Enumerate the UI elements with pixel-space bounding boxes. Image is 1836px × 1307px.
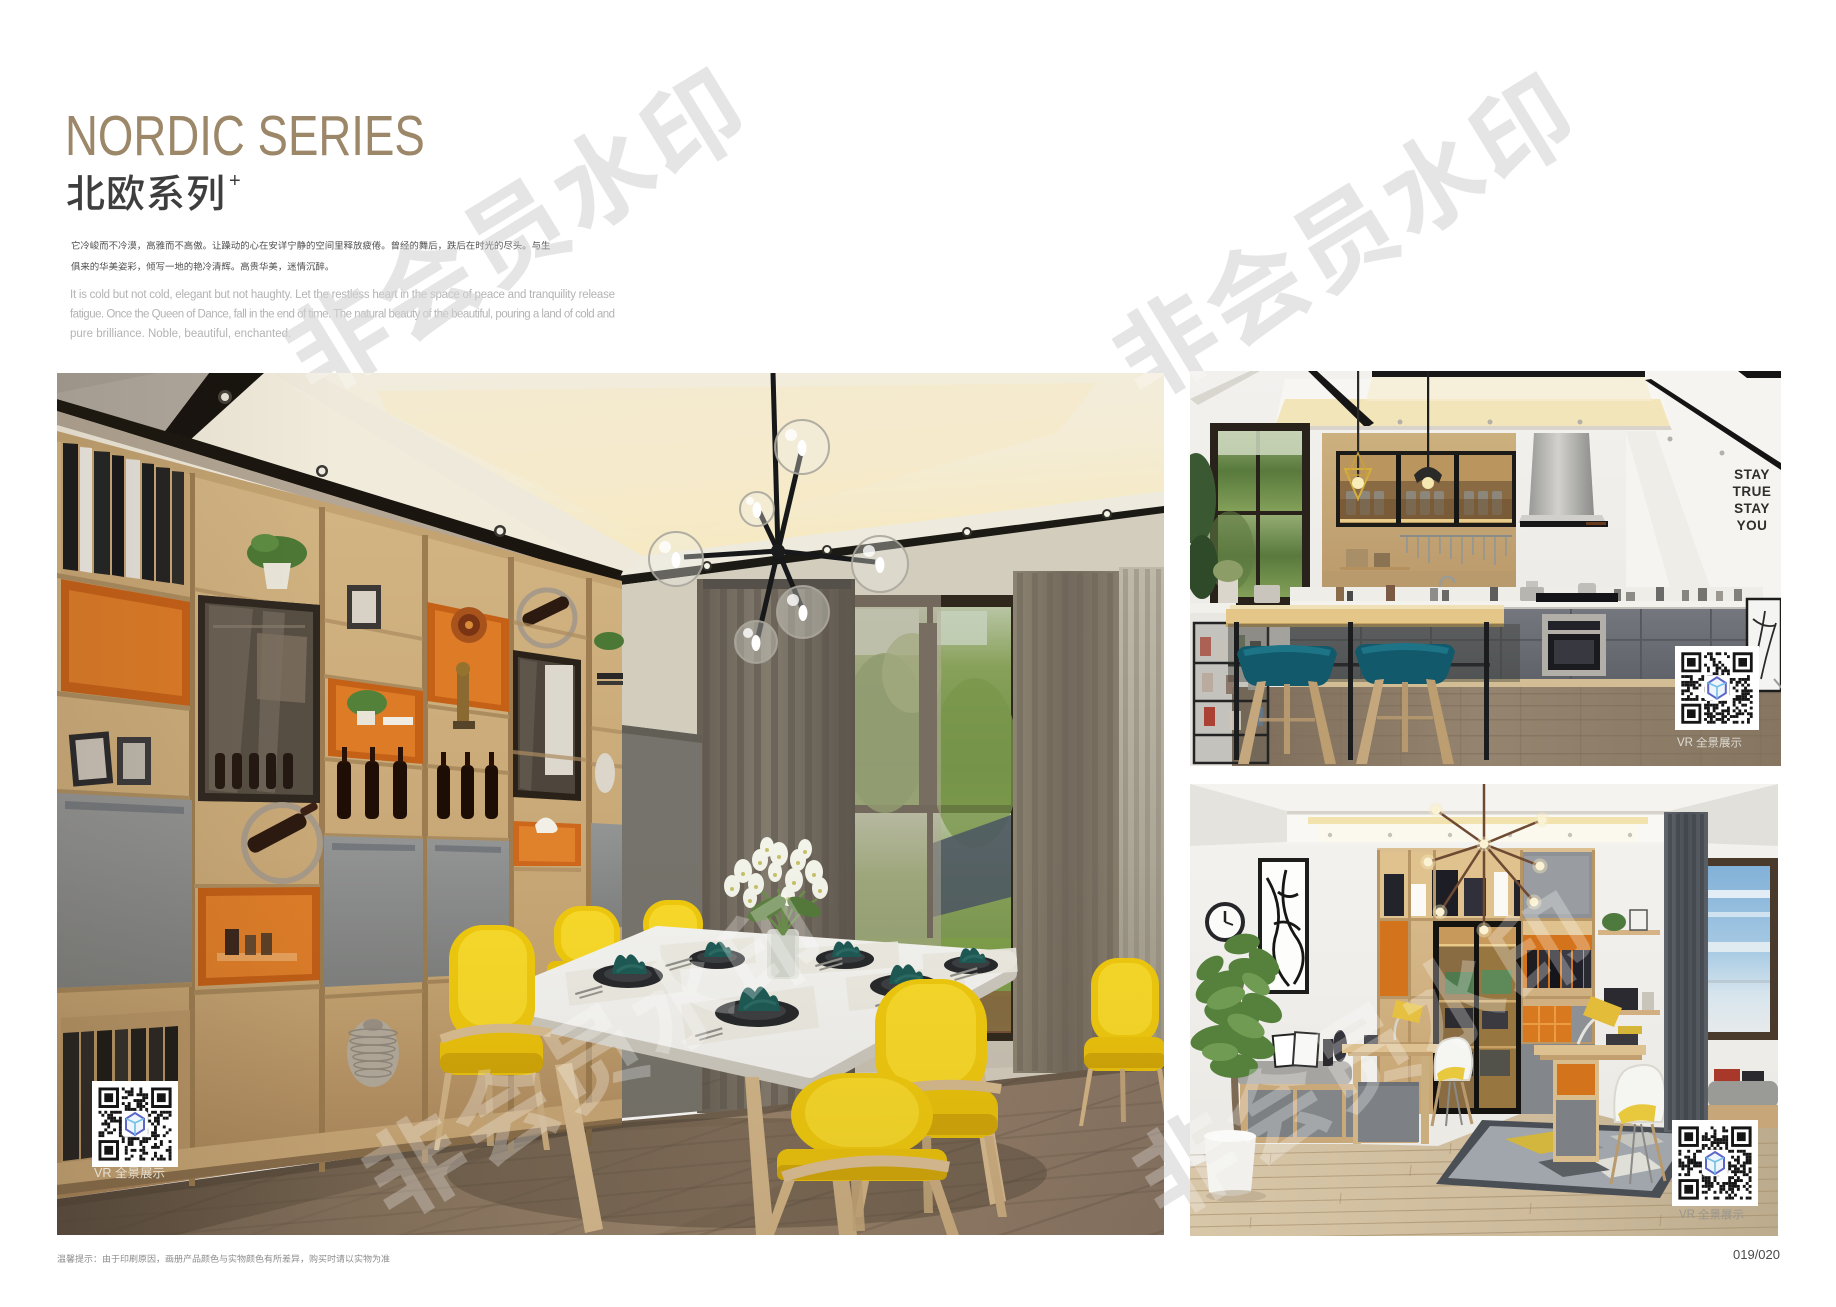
svg-text:+: + [229, 170, 241, 192]
svg-text:pure brilliance. Noble, beauti: pure brilliance. Noble, beautiful, encha… [70, 328, 291, 340]
svg-text:It is cold but not cold, elega: It is cold but not cold, elegant but not… [70, 289, 615, 301]
svg-text:TRUE: TRUE [1733, 484, 1772, 499]
svg-text:fatigue. Once the Queen of Dan: fatigue. Once the Queen of Dance, fall i… [70, 308, 615, 320]
svg-text:STAY: STAY [1734, 501, 1770, 516]
svg-text:VR: VR [1677, 737, 1693, 749]
svg-text:VR: VR [1679, 1209, 1695, 1221]
svg-text:VR: VR [94, 1166, 111, 1180]
svg-text:STAY: STAY [1734, 467, 1770, 482]
svg-text:YOU: YOU [1737, 518, 1768, 533]
